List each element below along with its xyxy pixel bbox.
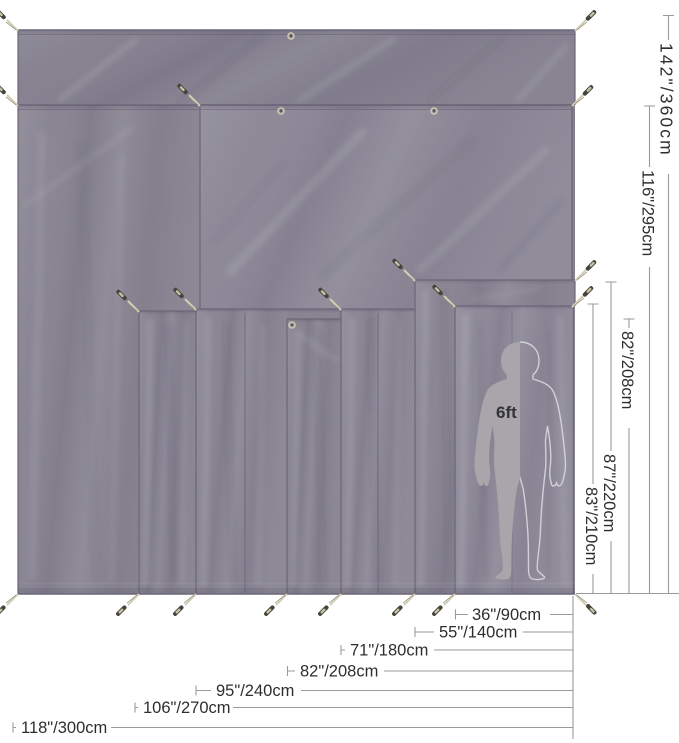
svg-text:106"/270cm: 106"/270cm xyxy=(143,699,231,717)
svg-text:95"/240cm: 95"/240cm xyxy=(216,682,294,700)
svg-text:116"/295cm: 116"/295cm xyxy=(639,170,657,256)
svg-text:6ft: 6ft xyxy=(496,403,517,422)
svg-text:71"/180cm: 71"/180cm xyxy=(350,642,428,660)
svg-text:142"/360cm: 142"/360cm xyxy=(657,43,677,157)
svg-text:87"/220cm: 87"/220cm xyxy=(600,454,618,532)
svg-text:55"/140cm: 55"/140cm xyxy=(439,624,517,642)
svg-text:118"/300cm: 118"/300cm xyxy=(21,719,107,737)
svg-text:36"/90cm: 36"/90cm xyxy=(472,606,541,624)
svg-text:83"/210cm: 83"/210cm xyxy=(582,487,600,565)
svg-text:82"/208cm: 82"/208cm xyxy=(618,331,636,409)
svg-text:82"/208cm: 82"/208cm xyxy=(300,663,378,681)
